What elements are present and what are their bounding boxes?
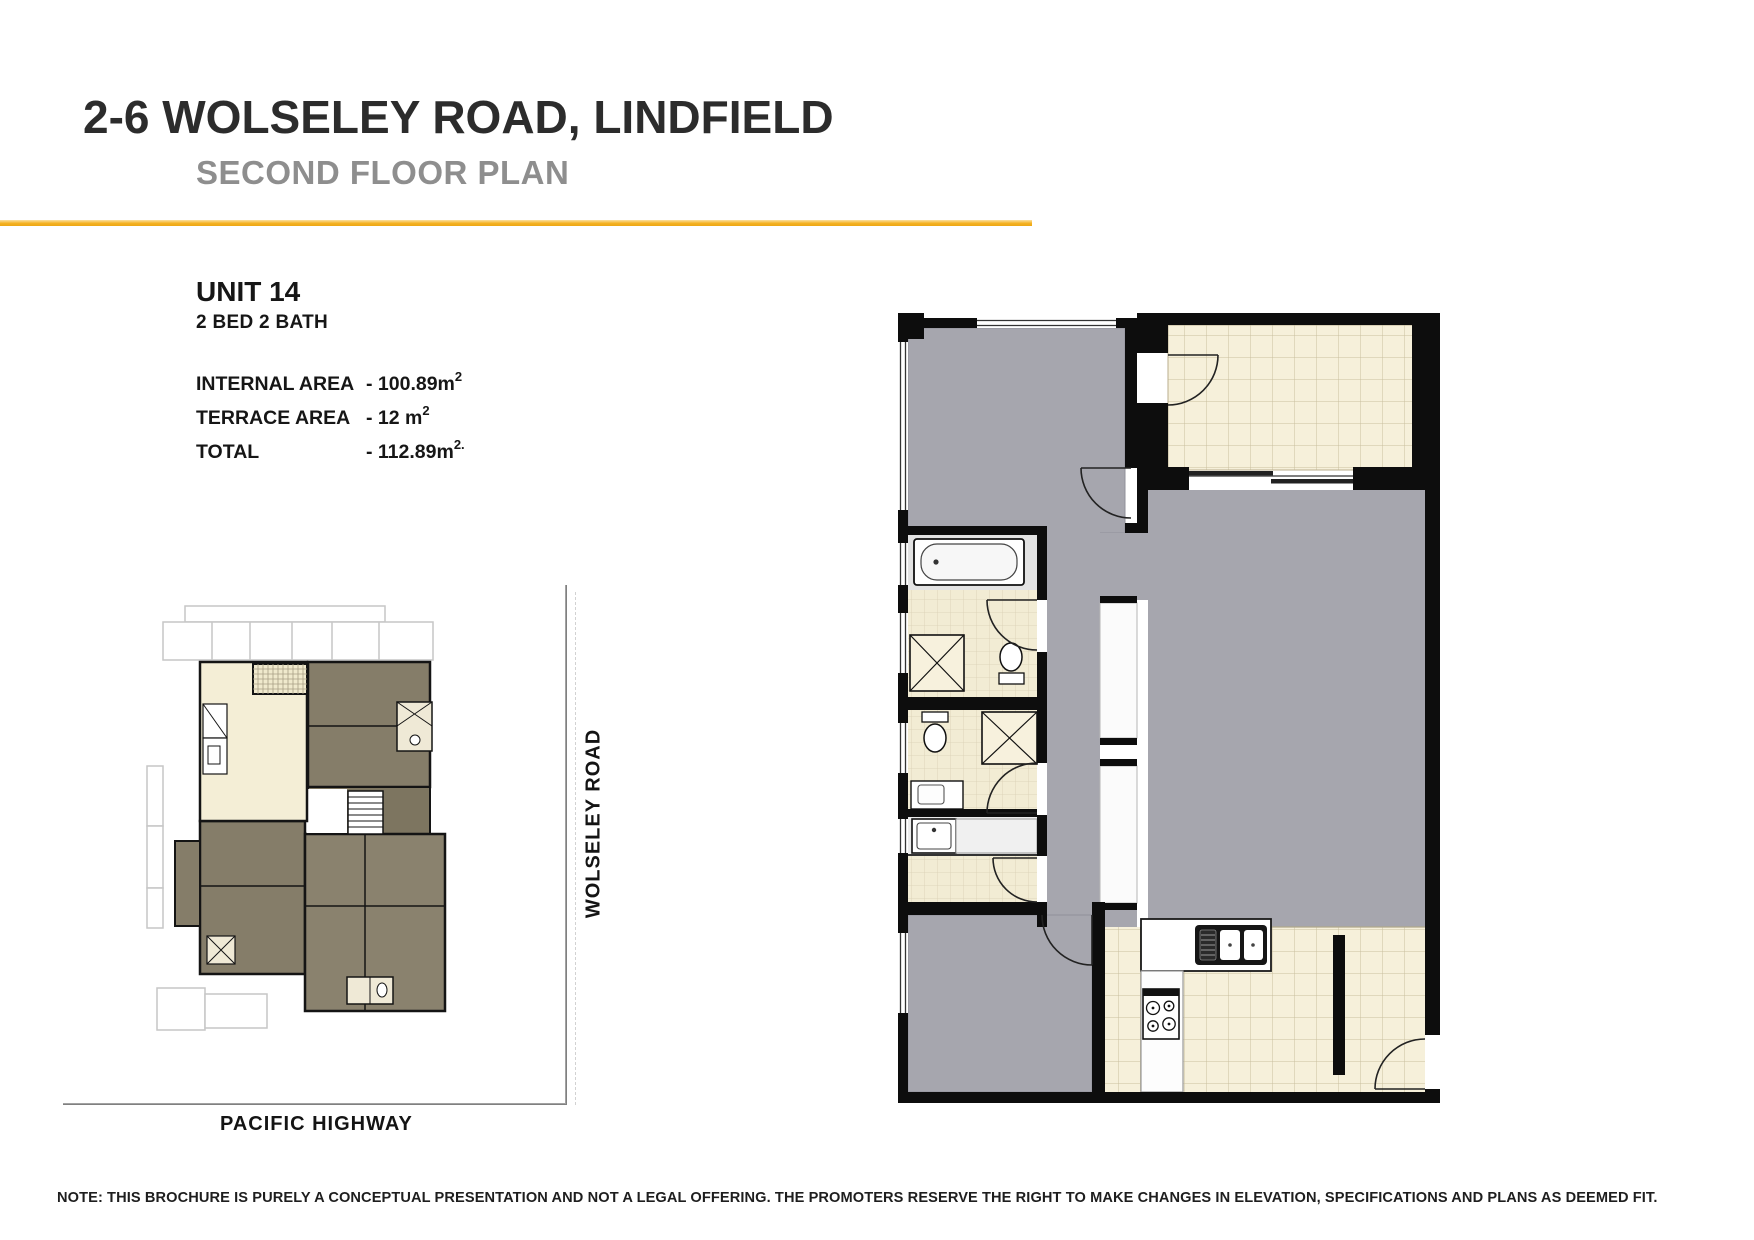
bathtub	[914, 539, 1024, 585]
area-value: - 100.89m2	[366, 373, 462, 395]
area-row-internal: INTERNAL AREA- 100.89m2	[196, 364, 465, 398]
terrace-sliding-door	[1187, 471, 1353, 484]
area-row-terrace: TERRACE AREA- 12 m2	[196, 398, 465, 432]
site-courtyard-gap	[307, 789, 347, 833]
toilet-2	[922, 712, 948, 752]
shower-1	[910, 635, 964, 691]
toilet-1	[999, 643, 1024, 684]
cooktop	[1143, 989, 1179, 1039]
entry-nook-floor	[908, 856, 1037, 902]
kitchen-sink	[1195, 925, 1267, 965]
area-table: INTERNAL AREA- 100.89m2 TERRACE AREA- 12…	[196, 364, 465, 466]
laundry-sink	[912, 819, 956, 853]
pacific-highway-boundary-line	[63, 1103, 566, 1105]
unit-config: 2 BED 2 BATH	[196, 312, 328, 334]
unit-14-terrace-hatch	[253, 664, 307, 694]
kitchen-wall-stub	[1333, 935, 1345, 1075]
bedroom-1-floor	[908, 328, 1125, 533]
area-row-total: TOTAL- 112.89m2.	[196, 432, 465, 466]
corridor-opening-floor	[1100, 533, 1148, 600]
accent-divider-bar	[0, 220, 1032, 226]
corridor-lower-floor	[1100, 910, 1137, 927]
wolseley-road-boundary-line	[565, 585, 567, 1105]
hall-wardrobe-strips	[1100, 596, 1137, 910]
stair-core	[348, 791, 383, 834]
vanity-basin	[911, 781, 963, 809]
area-value: - 112.89m2.	[366, 441, 465, 463]
laundry-counter	[956, 819, 1037, 853]
footer-disclaimer: NOTE: THIS BROCHURE IS PURELY A CONCEPTU…	[57, 1190, 1721, 1206]
site-plan-thumbnail	[145, 596, 455, 1044]
unit-name: UNIT 14	[196, 276, 300, 308]
corridor-floor	[1047, 528, 1100, 927]
living-dining-floor	[1148, 490, 1425, 927]
area-label: TOTAL	[196, 439, 366, 467]
shower-2	[982, 712, 1037, 764]
floor-plan	[898, 313, 1440, 1103]
page-title: 2-6 WOLSELEY ROAD, LINDFIELD	[83, 90, 834, 144]
window-top-bedroom-1	[977, 318, 1116, 328]
area-value: - 12 m2	[366, 407, 430, 429]
page-subtitle: SECOND FLOOR PLAN	[196, 154, 569, 192]
area-label: TERRACE AREA	[196, 405, 366, 433]
pacific-highway-label: PACIFIC HIGHWAY	[220, 1113, 413, 1136]
wolseley-road-dashed-line	[575, 592, 576, 1105]
wolseley-road-label: WOLSELEY ROAD	[583, 724, 606, 924]
bedroom-2-floor	[908, 915, 1092, 1092]
kitchen-island	[1141, 919, 1271, 971]
area-label: INTERNAL AREA	[196, 371, 366, 399]
terrace-floor	[1168, 325, 1414, 470]
